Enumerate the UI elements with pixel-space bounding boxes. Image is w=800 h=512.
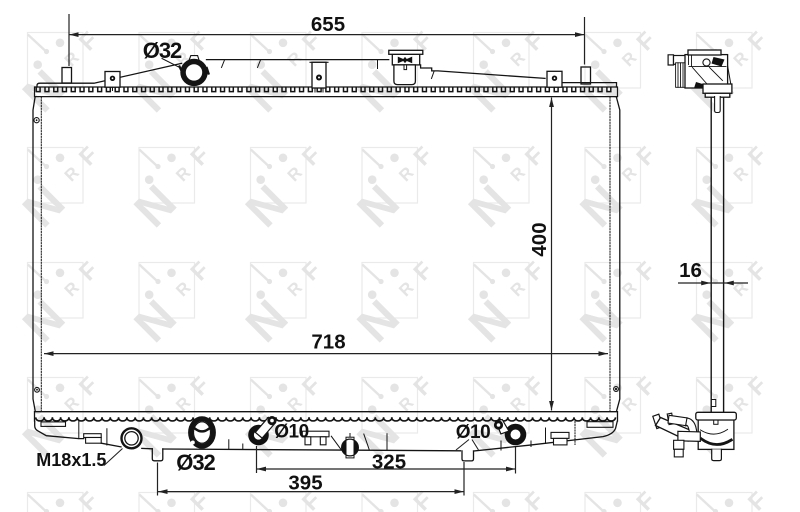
svg-text:Ø32: Ø32 <box>143 38 182 63</box>
svg-text:325: 325 <box>372 450 406 473</box>
svg-text:Ø10: Ø10 <box>274 421 308 442</box>
svg-text:655: 655 <box>311 13 345 36</box>
svg-text:Ø10: Ø10 <box>456 422 490 443</box>
svg-text:Ø32: Ø32 <box>176 450 215 475</box>
svg-text:16: 16 <box>679 259 702 282</box>
svg-text:M18x1.5: M18x1.5 <box>36 450 106 470</box>
svg-text:400: 400 <box>528 222 551 256</box>
svg-text:718: 718 <box>311 330 345 353</box>
svg-text:395: 395 <box>288 471 322 494</box>
